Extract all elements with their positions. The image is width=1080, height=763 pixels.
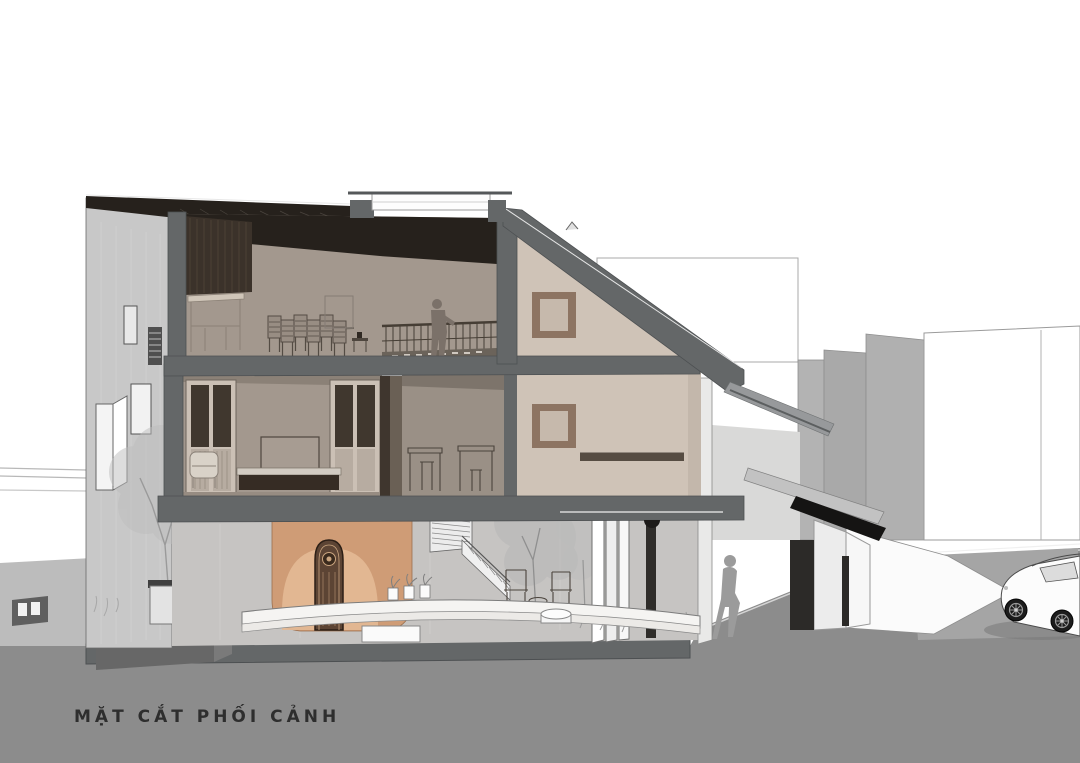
narrow-window-mid [131,384,151,434]
cut-post-level2-left [164,364,183,504]
level2-study [402,372,504,498]
drawing-title: MẶT CẮT PHỐI CẢNH [74,703,340,727]
bench-pouf [541,609,571,623]
cut-slab-mid [164,356,700,376]
tv-screen [261,437,319,469]
car-rear-wheel [1051,610,1073,632]
slatted-wardrobe [184,216,252,295]
section-drawing-canvas: MẶT CẮT PHỐI CẢNH [0,0,1080,763]
cut-post-level2-right [504,372,517,498]
top-floor-interior [184,214,497,362]
car-front-wheel [1005,599,1027,621]
cut-post-top-left [168,212,186,364]
level2-divider [380,376,402,498]
louver-vent [148,327,162,365]
background-building-outline-right [924,326,1080,540]
entrance-gate-panel [790,540,814,630]
gable-window-attic [532,292,576,338]
level2-gable-room [517,372,701,498]
narrow-window-upper [124,306,137,344]
gable-window-level2 [532,404,576,448]
bench-step [362,626,420,642]
gable-console [580,452,684,461]
entrance-gate-slat [842,556,849,626]
media-console [237,468,341,490]
cut-slab-ground [158,496,744,522]
car-headlight [1004,586,1008,590]
left-small-gate [12,596,48,626]
level2-bedroom [182,372,382,498]
architectural-section-rendering: MẶT CẮT PHỐI CẢNH [0,0,1080,763]
